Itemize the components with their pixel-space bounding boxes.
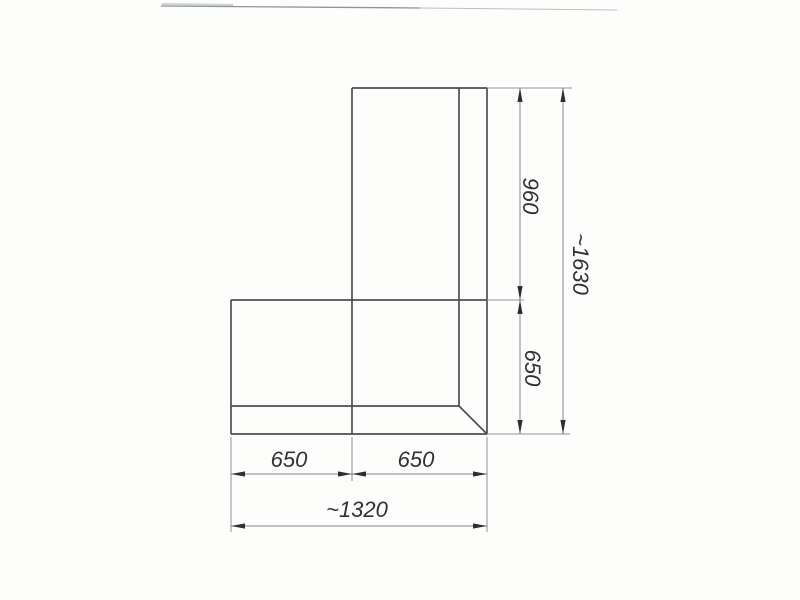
technical-drawing-canvas: 960 ~1630 650 650 650 ~1320	[0, 0, 800, 600]
arrow-right-1320	[473, 523, 487, 528]
dim-label-650-bottom-left: 650	[271, 447, 308, 472]
dim-label-650-bottom-right: 650	[398, 447, 435, 472]
arrow-up-1630-top	[560, 88, 565, 102]
arrow-up-960-top	[517, 88, 522, 102]
scan-edge-blue-tint	[162, 4, 233, 5]
arrow-down-960-bottom	[517, 286, 522, 300]
dimension-labels: 960 ~1630 650 650 650 ~1320	[271, 178, 593, 522]
unit-outline	[231, 88, 487, 434]
dim-label-1320: ~1320	[326, 497, 389, 522]
arrow-left-650b	[352, 471, 366, 476]
arrow-down-1630-bottom	[560, 420, 565, 434]
scan-artifact-top-edge	[161, 4, 617, 10]
arrow-right-650a	[338, 471, 352, 476]
dim-label-960: 960	[518, 178, 543, 215]
scan-edge-line-left	[161, 6, 420, 8]
dim-label-650-right-side: 650	[520, 350, 545, 387]
unit-outline-path	[231, 88, 487, 434]
arrow-left-1320	[231, 523, 245, 528]
arrow-down-650-bottom	[517, 420, 522, 434]
arrow-left-650a	[231, 471, 245, 476]
scan-edge-line-right	[420, 8, 617, 10]
scanned-drawing-page: 960 ~1630 650 650 650 ~1320	[0, 0, 800, 600]
arrow-up-650-top	[517, 300, 522, 314]
arrow-right-650b	[473, 471, 487, 476]
dim-label-1630: ~1630	[568, 233, 593, 296]
